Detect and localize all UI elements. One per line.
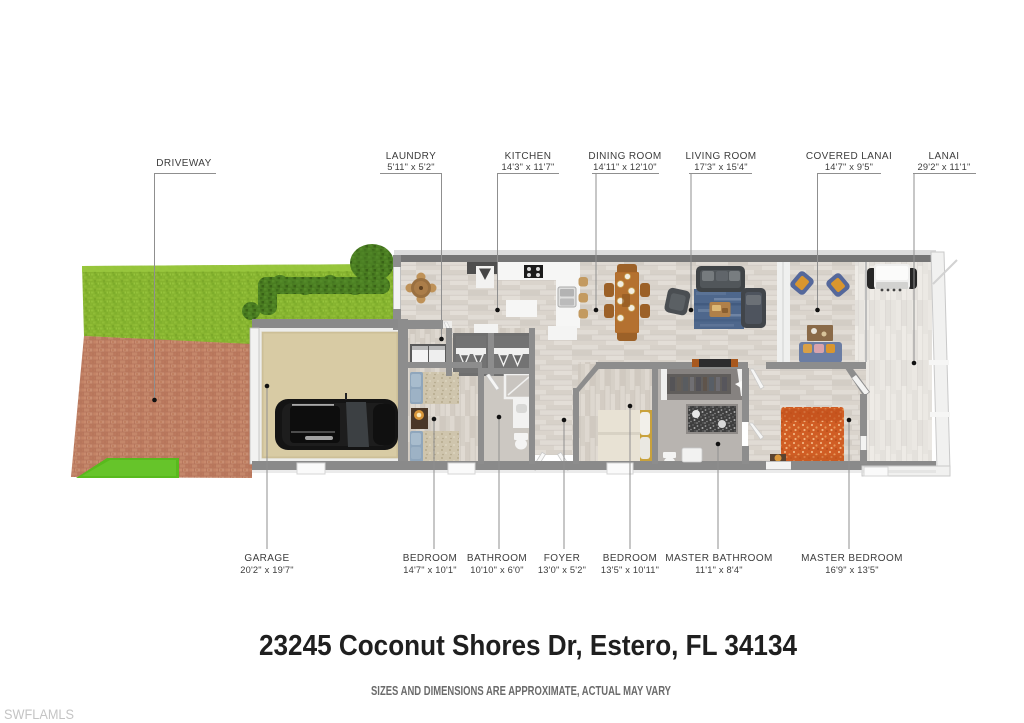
- svg-text:LANAI: LANAI: [929, 151, 960, 162]
- svg-text:KITCHEN: KITCHEN: [505, 151, 552, 162]
- svg-text:11'1" x 8'4": 11'1" x 8'4": [695, 565, 743, 575]
- svg-text:MASTER BATHROOM: MASTER BATHROOM: [665, 553, 772, 564]
- svg-text:14'3" x 11'7": 14'3" x 11'7": [502, 162, 555, 172]
- svg-text:17'3" x 15'4": 17'3" x 15'4": [694, 162, 748, 172]
- svg-text:20'2" x 19'7": 20'2" x 19'7": [240, 565, 294, 575]
- svg-text:SIZES AND DIMENSIONS ARE APPRO: SIZES AND DIMENSIONS ARE APPROXIMATE, AC…: [371, 684, 671, 698]
- svg-text:SWFLAMLS: SWFLAMLS: [4, 706, 74, 722]
- svg-text:14'7" x 9'5": 14'7" x 9'5": [825, 162, 873, 172]
- svg-text:14'11" x 12'10": 14'11" x 12'10": [593, 162, 657, 172]
- svg-text:DRIVEWAY: DRIVEWAY: [156, 158, 211, 169]
- svg-text:29'2" x 11'1": 29'2" x 11'1": [918, 162, 971, 172]
- svg-text:BEDROOM: BEDROOM: [403, 553, 457, 564]
- svg-text:GARAGE: GARAGE: [244, 553, 289, 564]
- svg-text:LIVING ROOM: LIVING ROOM: [685, 151, 756, 162]
- svg-text:16'9" x 13'5": 16'9" x 13'5": [825, 565, 879, 575]
- svg-text:23245 Coconut Shores Dr, Ester: 23245 Coconut Shores Dr, Estero, FL 3413…: [259, 630, 797, 662]
- svg-text:DINING ROOM: DINING ROOM: [588, 151, 661, 162]
- svg-text:BATHROOM: BATHROOM: [467, 553, 527, 564]
- svg-text:COVERED LANAI: COVERED LANAI: [806, 151, 892, 162]
- svg-text:FOYER: FOYER: [544, 553, 580, 564]
- svg-text:MASTER BEDROOM: MASTER BEDROOM: [801, 553, 903, 564]
- svg-text:5'11" x 5'2": 5'11" x 5'2": [387, 162, 435, 172]
- svg-text:14'7" x 10'1": 14'7" x 10'1": [403, 565, 457, 575]
- svg-text:BEDROOM: BEDROOM: [603, 553, 657, 564]
- svg-text:13'0" x 5'2": 13'0" x 5'2": [538, 565, 586, 575]
- svg-text:13'5" x 10'11": 13'5" x 10'11": [601, 565, 659, 575]
- svg-text:LAUNDRY: LAUNDRY: [386, 151, 436, 162]
- svg-text:10'10" x 6'0": 10'10" x 6'0": [470, 565, 524, 575]
